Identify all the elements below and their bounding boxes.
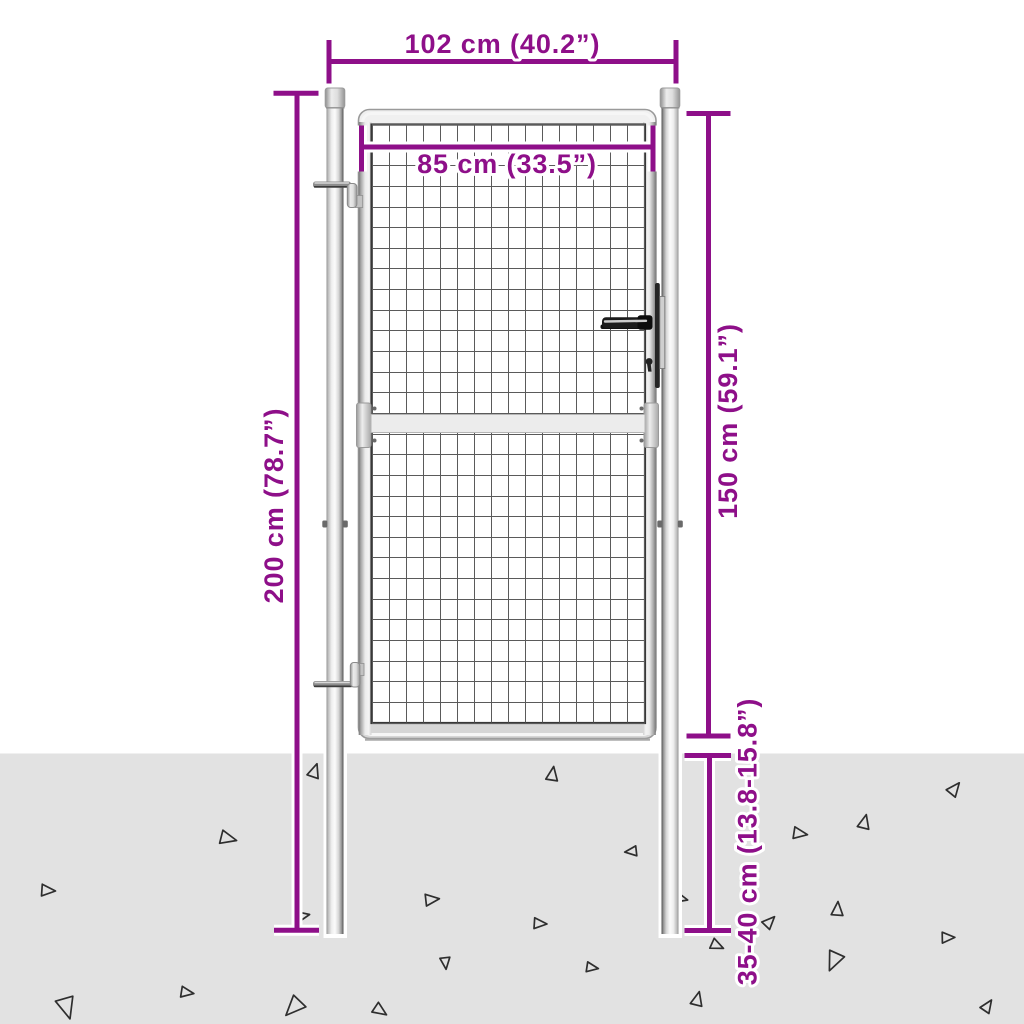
svg-text:150 cm (59.1”): 150 cm (59.1”) xyxy=(713,323,743,519)
svg-text:85 cm (33.5”): 85 cm (33.5”) xyxy=(417,149,597,179)
svg-text:200 cm (78.7”): 200 cm (78.7”) xyxy=(259,408,289,604)
svg-text:35-40 cm (13.8-15.8”): 35-40 cm (13.8-15.8”) xyxy=(733,698,763,986)
svg-text:102 cm (40.2”): 102 cm (40.2”) xyxy=(405,29,601,59)
